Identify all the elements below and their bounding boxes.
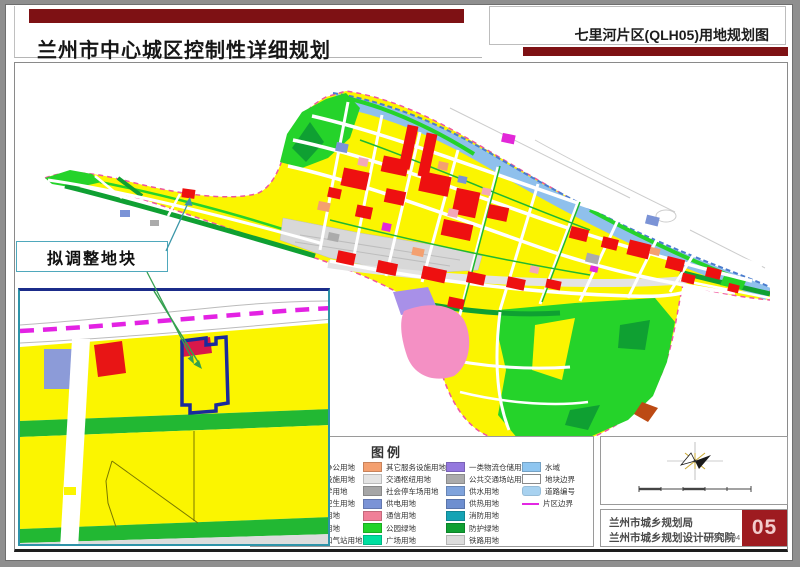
plan-date: 2018.04	[713, 533, 740, 542]
legend-label: 公共交通场站用地	[469, 474, 529, 485]
legend-label: 道路编号	[545, 486, 575, 497]
callout-box: 拟调整地块	[16, 241, 168, 272]
legend-item: 社会停车场用地	[363, 485, 446, 497]
org-name-1: 兰州市城乡规划局	[609, 515, 693, 530]
legend-swatch	[522, 462, 541, 472]
legend-label: 片区边界	[543, 498, 573, 509]
legend-item: 交通枢纽用地	[363, 473, 446, 485]
legend-swatch	[446, 462, 465, 472]
plan-document-page: { "header": { "accent_color": "#7e1114",…	[0, 0, 800, 567]
legend-swatch	[446, 499, 465, 509]
adjustment-target-plot	[181, 188, 195, 199]
legend-item: 通信用地	[363, 510, 446, 522]
legend-label: 供电用地	[386, 498, 416, 509]
legend-item: 广场用地	[363, 534, 446, 546]
legend-swatch	[363, 535, 382, 545]
header-accent-bar-left	[29, 9, 464, 23]
legend-label: 广场用地	[386, 535, 416, 546]
inset-map-canvas	[20, 291, 330, 546]
legend-swatch	[363, 499, 382, 509]
sheet-number: 05	[752, 516, 777, 540]
legend-column-4: 水域 地块边界 道路编号 片区边界	[522, 461, 575, 510]
legend-swatch	[363, 474, 382, 484]
legend-column-2: 其它服务设施用地 交通枢纽用地 社会停车场用地 供电用地 通信用地 公园绿地 广…	[363, 461, 446, 546]
legend-swatch	[446, 535, 465, 545]
header-right-box: 七里河片区(QLH05)用地规划图	[489, 6, 786, 45]
main-title: 兰州市中心城区控制性详细规划	[37, 34, 331, 63]
legend-item: 供电用地	[363, 498, 446, 510]
legend-label: 公园绿地	[386, 523, 416, 534]
legend-label: 地块边界	[545, 474, 575, 485]
sheet-number-box: 05	[742, 510, 787, 546]
legend-label: 供水用地	[469, 486, 499, 497]
legend-item: 供水用地	[446, 485, 529, 497]
legend-label: 通信用地	[386, 510, 416, 521]
scale-bar-icon	[635, 483, 755, 495]
compass-rose-icon	[665, 441, 725, 481]
legend-swatch-outline	[522, 474, 541, 484]
legend-label: 一类物流仓储用地	[469, 462, 529, 473]
legend-swatch	[446, 523, 465, 533]
legend-item: 消防用地	[446, 510, 529, 522]
sheet-title: 七里河片区(QLH05)用地规划图	[575, 25, 769, 45]
legend-swatch	[363, 462, 382, 472]
legend-item: 公共交通场站用地	[446, 473, 529, 485]
legend-item: 道路编号	[522, 485, 575, 497]
callout-label: 拟调整地块	[47, 245, 137, 269]
legend-item: 供热用地	[446, 498, 529, 510]
legend-item: 地块边界	[522, 473, 575, 485]
legend-label: 铁路用地	[469, 535, 499, 546]
header-left-box: 兰州市中心城区控制性详细规划	[14, 6, 482, 58]
road-number-badge	[522, 486, 541, 496]
legend-boundary-line	[522, 503, 539, 505]
legend-item: 一类物流仓储用地	[446, 461, 529, 473]
legend-label: 其它服务设施用地	[386, 462, 446, 473]
legend-swatch	[363, 511, 382, 521]
title-block: 兰州市城乡规划局 兰州市城乡规划设计研究院 2018.04 05	[600, 509, 788, 547]
legend-item: 公园绿地	[363, 522, 446, 534]
legend-swatch	[446, 474, 465, 484]
legend-item: 防护绿地	[446, 522, 529, 534]
legend-item: 其它服务设施用地	[363, 461, 446, 473]
legend-label: 社会停车场用地	[386, 486, 439, 497]
legend-label: 交通枢纽用地	[386, 474, 431, 485]
inset-detail-map	[18, 288, 330, 546]
legend-swatch	[363, 523, 382, 533]
legend-item: 铁路用地	[446, 534, 529, 546]
legend-title: 图例	[371, 442, 403, 461]
legend-label: 供热用地	[469, 498, 499, 509]
legend-swatch	[446, 486, 465, 496]
legend-swatch	[446, 511, 465, 521]
legend-item: 水域	[522, 461, 575, 473]
legend-column-3: 一类物流仓储用地 公共交通场站用地 供水用地 供热用地 消防用地 防护绿地 铁路…	[446, 461, 529, 546]
legend-label: 消防用地	[469, 510, 499, 521]
legend-label: 水域	[545, 462, 560, 473]
legend-swatch	[363, 486, 382, 496]
header-accent-bar-right	[523, 47, 788, 56]
compass-box	[600, 436, 788, 505]
legend-item: 片区边界	[522, 498, 575, 510]
legend-label: 防护绿地	[469, 523, 499, 534]
